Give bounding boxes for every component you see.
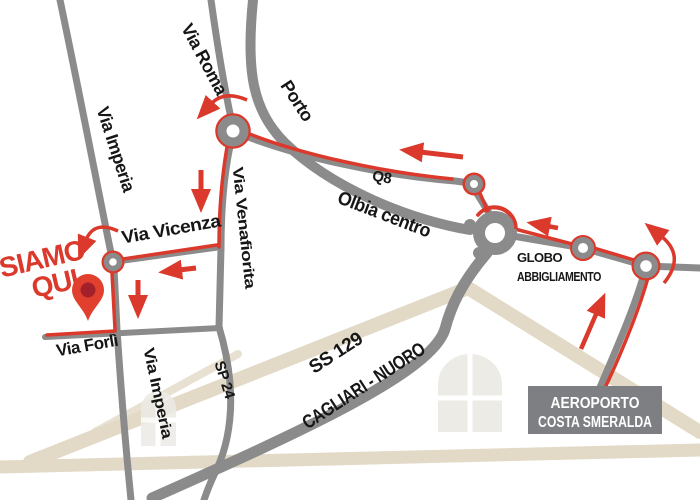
location-pin-icon (72, 274, 104, 321)
street-label-via-roma: Via Roma (177, 20, 232, 99)
roundabout-globo (477, 207, 516, 249)
house-window (438, 354, 502, 432)
poi-label-globo-line1: GLOBO (517, 250, 563, 265)
roundabout-east-small (572, 237, 595, 260)
route-map: Via Roma Via Imperia Porto Q8 Olbia cent… (0, 0, 700, 500)
arrow-up-airport-icon (581, 312, 597, 349)
roundabout-airport-junction (633, 253, 659, 279)
destination-marker: SIAMO QUI (0, 234, 104, 321)
arrow-left-q8-icon (420, 152, 463, 157)
street-label-q8: Q8 (371, 168, 393, 188)
road-airport (598, 266, 646, 392)
arrow-turn-imperia-icon (86, 227, 118, 240)
roundabout-via-vicenza (103, 252, 123, 272)
street-label-via-vicenza: Via Vicenza (120, 210, 224, 247)
street-label-porto: Porto (277, 77, 318, 126)
roundabout-q8-junction (464, 174, 484, 194)
poi-label-globo-line2: ABBIGLIAMENTO (517, 269, 601, 284)
arrow-left-globo-icon (547, 226, 558, 228)
house-base-line (0, 450, 700, 467)
map-canvas: Via Roma Via Imperia Porto Q8 Olbia cent… (0, 0, 700, 500)
road-via-venafiorita-sp24 (204, 146, 231, 500)
airport-sign: AEROPORTO COSTA SMERALDA (528, 386, 662, 434)
arrow-left-vicenza-icon (179, 268, 196, 270)
arrow-turn-airport-icon (661, 236, 674, 283)
airport-label-line2: COSTA SMERALDA (538, 414, 652, 431)
roundabout-via-roma (217, 115, 249, 147)
airport-label-line1: AEROPORTO (551, 395, 640, 412)
street-label-via-venafiorita: Via Venafiorita (229, 166, 259, 291)
